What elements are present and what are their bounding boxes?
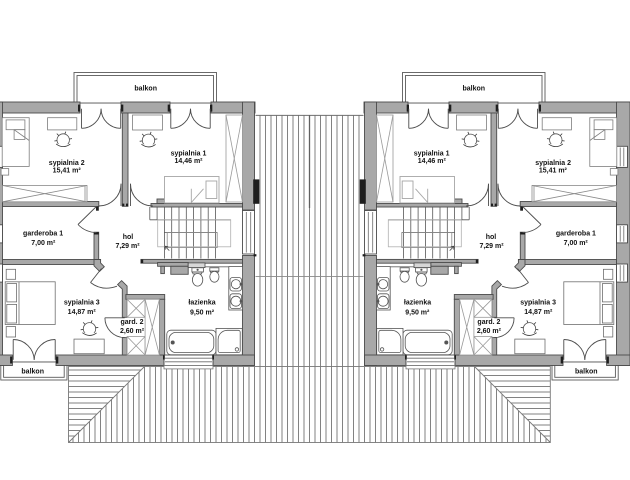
svg-text:7,29 m²: 7,29 m² xyxy=(479,243,504,250)
svg-text:sypialnia 2: sypialnia 2 xyxy=(49,160,85,167)
svg-text:7,00 m²: 7,00 m² xyxy=(31,240,56,247)
svg-text:9,50 m²: 9,50 m² xyxy=(190,310,215,317)
svg-text:balkon: balkon xyxy=(463,85,486,92)
svg-text:łazienka: łazienka xyxy=(188,299,215,306)
svg-text:garderoba 1: garderoba 1 xyxy=(23,231,63,238)
svg-text:14,46 m²: 14,46 m² xyxy=(418,158,447,165)
svg-text:sypialnia 2: sypialnia 2 xyxy=(535,160,571,167)
svg-text:gard. 2: gard. 2 xyxy=(121,319,144,326)
svg-text:balkon: balkon xyxy=(575,369,598,376)
svg-text:7,29 m²: 7,29 m² xyxy=(115,243,140,250)
svg-text:hol: hol xyxy=(123,234,134,241)
svg-text:hol: hol xyxy=(486,234,497,241)
svg-text:sypialnia 3: sypialnia 3 xyxy=(64,300,100,307)
svg-text:14,87 m²: 14,87 m² xyxy=(68,309,97,316)
svg-text:garderoba 1: garderoba 1 xyxy=(556,231,596,238)
svg-text:balkon: balkon xyxy=(134,85,157,92)
svg-text:9,50 m²: 9,50 m² xyxy=(405,310,430,317)
svg-text:15,41 m²: 15,41 m² xyxy=(539,168,568,175)
svg-text:15,41 m²: 15,41 m² xyxy=(53,168,82,175)
svg-text:14,46 m²: 14,46 m² xyxy=(174,158,203,165)
svg-text:sypialnia 3: sypialnia 3 xyxy=(520,300,556,307)
svg-text:łazienka: łazienka xyxy=(404,299,431,306)
svg-text:7,00 m²: 7,00 m² xyxy=(564,240,589,247)
svg-text:sypialnia 1: sypialnia 1 xyxy=(414,151,450,158)
svg-text:2,60 m²: 2,60 m² xyxy=(477,328,502,335)
svg-text:sypialnia 1: sypialnia 1 xyxy=(171,151,207,158)
svg-text:2,60 m²: 2,60 m² xyxy=(120,328,145,335)
svg-text:balkon: balkon xyxy=(21,369,44,376)
svg-text:14,87 m²: 14,87 m² xyxy=(524,309,553,316)
svg-text:gard. 2: gard. 2 xyxy=(477,319,500,326)
